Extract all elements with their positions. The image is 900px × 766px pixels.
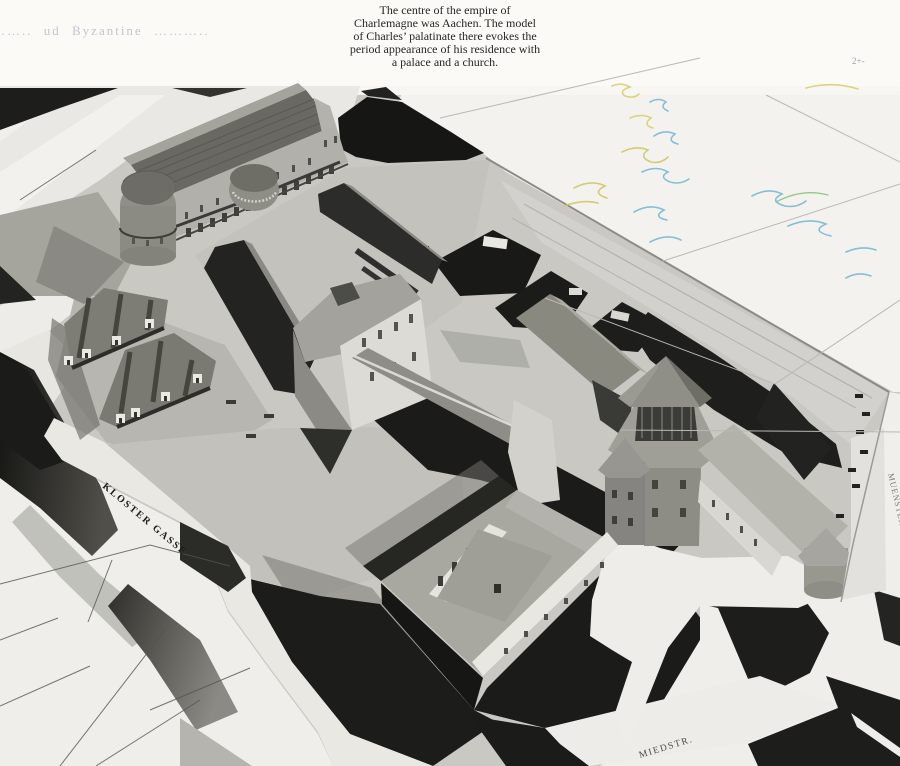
svg-text:2+-: 2+- [852,56,865,66]
